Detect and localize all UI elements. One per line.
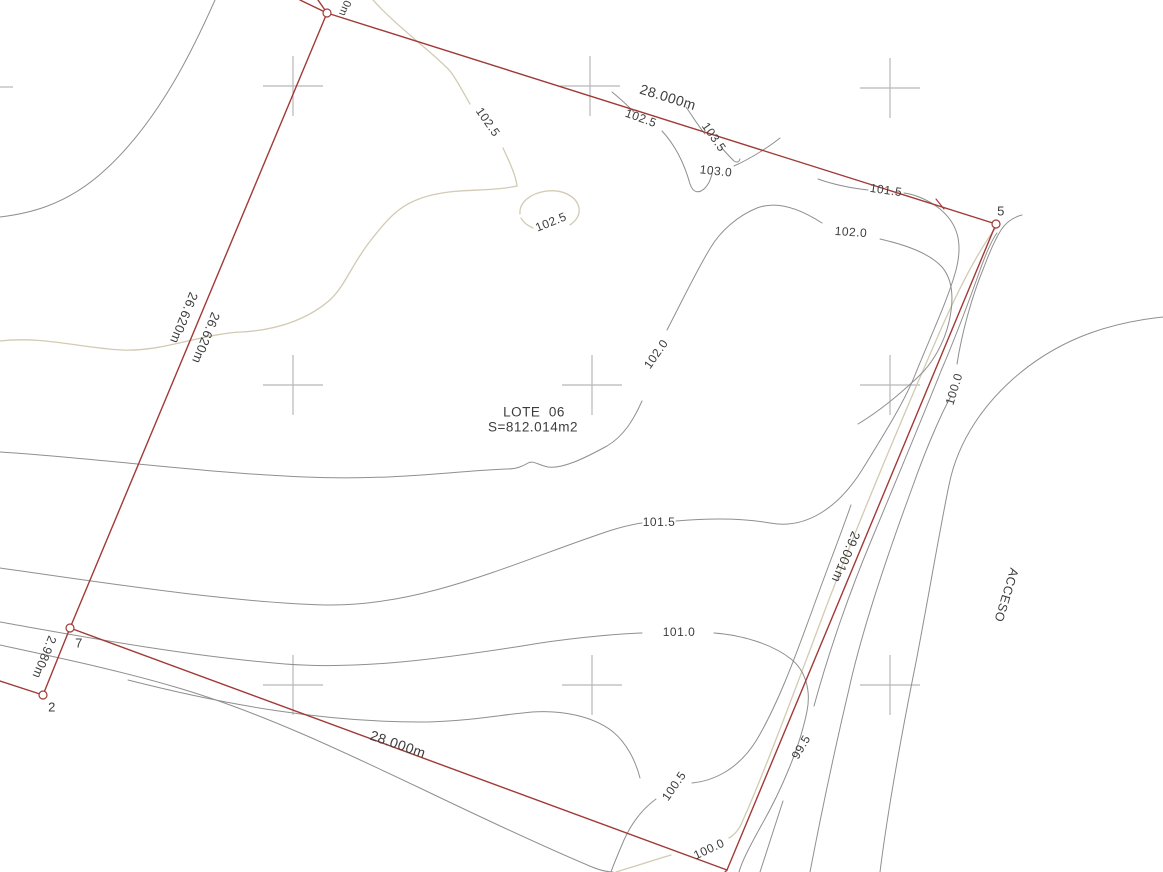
contour-102-5-left <box>0 0 517 350</box>
drawing-layers <box>0 0 1163 872</box>
boundary-left-edge <box>70 13 327 628</box>
survey-points <box>39 9 1000 699</box>
grid-crosshair-marks <box>0 56 920 715</box>
contour-label-102-0-top: 102.0 <box>834 225 867 239</box>
point-marker-2 <box>39 691 47 699</box>
contour-102-0 <box>0 205 952 478</box>
lot-area: S=812.014m2 <box>488 420 578 434</box>
lot-title: LOTE 06 <box>503 405 565 419</box>
contour-99-5 <box>760 233 997 872</box>
point-number-7: 7 <box>75 637 83 650</box>
contour-label-101-5-mid: 101.5 <box>643 516 676 528</box>
point-number-5: 5 <box>997 205 1005 218</box>
point-marker-5 <box>992 220 1000 228</box>
contour-outside-bottom <box>0 645 613 872</box>
contour-100-5-spur <box>128 680 640 778</box>
contour-lines-gray <box>0 0 1163 872</box>
boundary-segment-2-west <box>0 681 43 695</box>
boundary-right-edge <box>725 224 996 872</box>
contour-label-103-0: 103.0 <box>699 163 733 178</box>
contour-100-5 <box>611 505 851 872</box>
contour-top-left <box>0 0 215 217</box>
dimension-tick <box>936 199 944 209</box>
contour-label-101-0: 101.0 <box>663 626 696 638</box>
contour-101-5 <box>0 179 959 605</box>
point-number-2: 2 <box>48 701 56 714</box>
point-marker-7 <box>66 624 74 632</box>
cad-survey-drawing-canvas[interactable]: 0m 28.000m 102.5 103.5 103.0 102.5 102.5… <box>0 0 1163 872</box>
point-marker-1 <box>323 9 331 17</box>
contour-102-5-top-claw <box>612 92 780 192</box>
contour-100-0-outside <box>810 215 1022 872</box>
